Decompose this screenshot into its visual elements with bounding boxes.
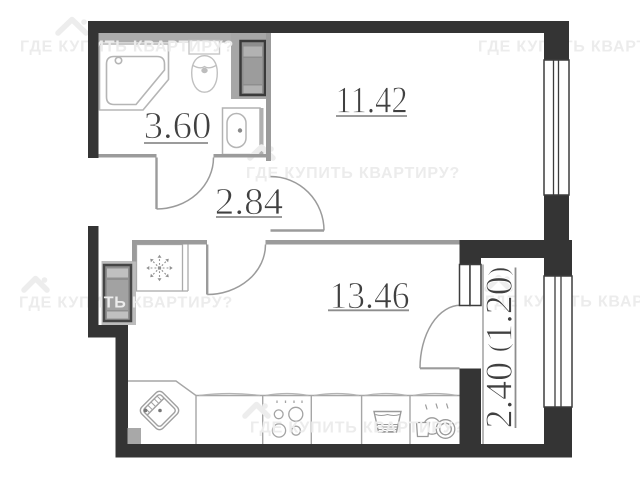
svg-text:ГДЕ КУПИТЬ КВАРТИРУ?: ГДЕ КУПИТЬ КВАРТИРУ? [19, 295, 233, 312]
svg-text:3.60: 3.60 [144, 105, 212, 147]
svg-text:2.40 (1.20): 2.40 (1.20) [479, 267, 521, 429]
svg-text:ГДЕ КУПИТЬ КВАРТИРУ?: ГДЕ КУПИТЬ КВАРТИРУ? [250, 420, 464, 437]
svg-text:11.42: 11.42 [335, 78, 407, 121]
svg-text:ГДЕ КУПИТЬ КВАРТИРУ?: ГДЕ КУПИТЬ КВАРТИРУ? [20, 39, 234, 56]
svg-text:ГДЕ КУПИТЬ КВАРТИРУ?: ГДЕ КУПИТЬ КВАРТИРУ? [246, 165, 460, 182]
